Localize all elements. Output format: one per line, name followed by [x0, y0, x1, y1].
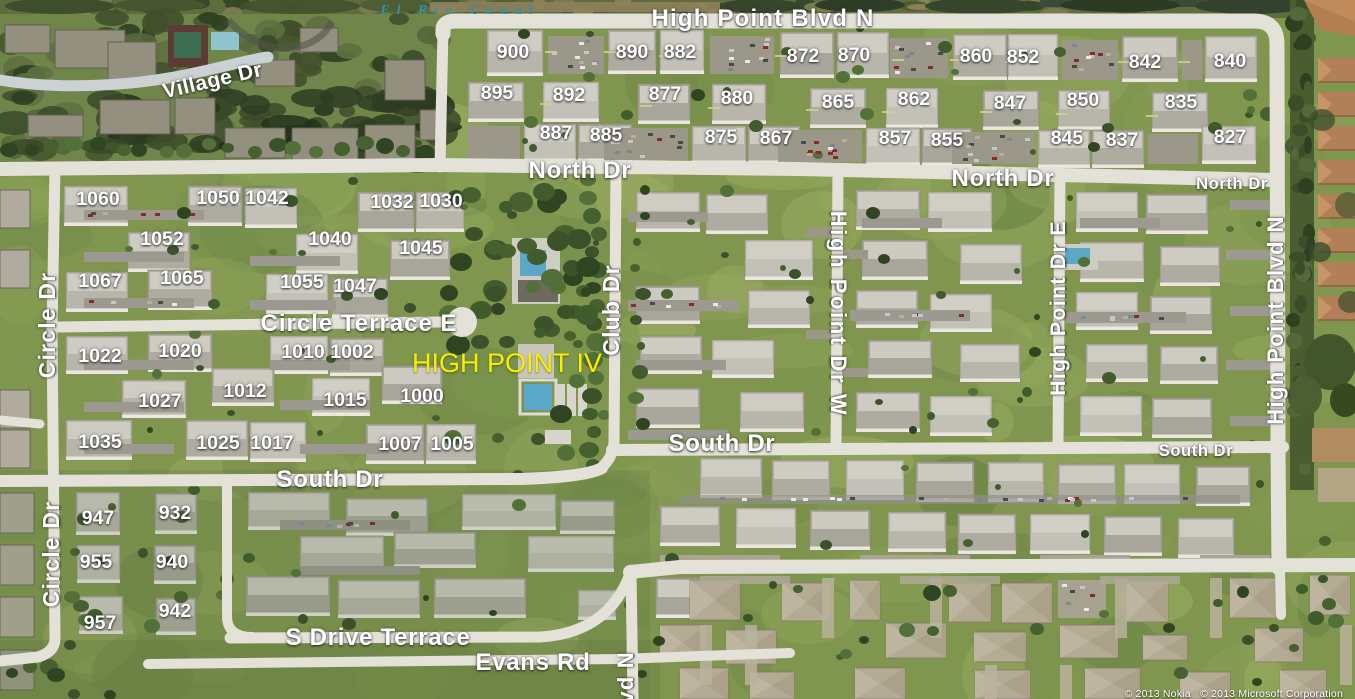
svg-text:North Dr: North Dr [1196, 175, 1268, 193]
svg-text:1012: 1012 [223, 380, 267, 402]
svg-text:862: 862 [898, 88, 931, 110]
svg-text:932: 932 [159, 502, 192, 524]
svg-text:Circle Dr: Circle Dr [38, 501, 64, 608]
svg-text:Evans Rd: Evans Rd [476, 649, 591, 676]
svg-text:840: 840 [1214, 50, 1247, 72]
svg-text:Club Dr: Club Dr [598, 264, 624, 355]
svg-text:887: 887 [540, 122, 573, 144]
svg-text:1045: 1045 [399, 237, 443, 259]
svg-text:S Drive Terrace: S Drive Terrace [286, 624, 471, 651]
svg-text:1000: 1000 [400, 385, 444, 407]
svg-text:High Point Dr W: High Point Dr W [826, 211, 851, 417]
svg-text:High Point Blvd N: High Point Blvd N [651, 5, 874, 32]
svg-text:895: 895 [481, 82, 514, 104]
svg-text:1050: 1050 [196, 187, 240, 209]
svg-text:892: 892 [553, 84, 586, 106]
svg-text:845: 845 [1051, 127, 1084, 149]
svg-text:1020: 1020 [158, 340, 202, 362]
svg-text:Circle Terrace E: Circle Terrace E [261, 310, 458, 337]
svg-text:1040: 1040 [308, 228, 352, 250]
svg-text:847: 847 [994, 92, 1027, 114]
svg-text:© 2013 Nokia © 2013 Microsof: © 2013 Nokia © 2013 Microsoft Corporatio… [1125, 688, 1343, 699]
svg-text:1067: 1067 [78, 270, 121, 292]
svg-text:1017: 1017 [250, 432, 293, 454]
svg-text:1022: 1022 [78, 345, 122, 367]
svg-text:1025: 1025 [196, 432, 240, 454]
svg-text:957: 957 [84, 612, 117, 634]
svg-text:955: 955 [80, 551, 113, 573]
svg-text:1055: 1055 [280, 271, 324, 293]
svg-text:870: 870 [838, 44, 871, 66]
svg-text:South Dr: South Dr [277, 466, 384, 493]
svg-text:North Dr: North Dr [529, 157, 632, 184]
svg-text:1065: 1065 [160, 267, 204, 289]
svg-text:South Dr: South Dr [1159, 442, 1233, 460]
svg-text:1052: 1052 [140, 228, 184, 250]
svg-text:880: 880 [721, 87, 754, 109]
svg-text:Circle Dr: Circle Dr [34, 272, 60, 379]
svg-text:1005: 1005 [430, 433, 474, 455]
svg-text:High Point Blvd N: High Point Blvd N [1263, 215, 1288, 425]
svg-text:872: 872 [787, 45, 820, 67]
svg-text:1027: 1027 [138, 390, 181, 412]
svg-text:1030: 1030 [419, 190, 463, 212]
svg-text:850: 850 [1067, 89, 1100, 111]
svg-text:867: 867 [760, 127, 793, 149]
svg-text:835: 835 [1165, 91, 1198, 113]
svg-text:877: 877 [649, 83, 682, 105]
svg-text:875: 875 [705, 126, 738, 148]
svg-text:1060: 1060 [76, 188, 120, 210]
svg-text:HIGH POINT IV: HIGH POINT IV [412, 348, 602, 378]
svg-text:837: 837 [1106, 129, 1139, 151]
svg-text:842: 842 [1129, 51, 1162, 73]
svg-text:890: 890 [616, 41, 649, 63]
svg-text:1002: 1002 [330, 341, 374, 363]
svg-text:857: 857 [879, 127, 912, 149]
svg-text:El Rio Canal: El Rio Canal [379, 3, 539, 18]
svg-text:865: 865 [822, 91, 855, 113]
svg-text:900: 900 [497, 41, 530, 63]
svg-text:860: 860 [960, 45, 993, 67]
svg-text:1042: 1042 [245, 187, 289, 209]
svg-text:882: 882 [664, 41, 697, 63]
svg-text:1032: 1032 [370, 191, 414, 213]
svg-text:827: 827 [1214, 126, 1247, 148]
svg-text:lvd N: lvd N [613, 651, 638, 699]
svg-text:940: 940 [156, 551, 189, 573]
svg-text:855: 855 [931, 129, 964, 151]
svg-text:852: 852 [1007, 46, 1040, 68]
svg-text:1010: 1010 [281, 341, 325, 363]
svg-text:South Dr: South Dr [669, 430, 776, 457]
svg-text:1007: 1007 [378, 433, 421, 455]
svg-text:1035: 1035 [78, 431, 122, 453]
svg-text:942: 942 [159, 600, 192, 622]
svg-text:1015: 1015 [323, 389, 367, 411]
svg-text:1047: 1047 [333, 275, 376, 297]
svg-text:North Dr: North Dr [952, 165, 1055, 192]
svg-text:947: 947 [82, 507, 115, 529]
svg-text:High Point Dr E: High Point Dr E [1046, 220, 1070, 396]
svg-text:885: 885 [590, 124, 623, 146]
